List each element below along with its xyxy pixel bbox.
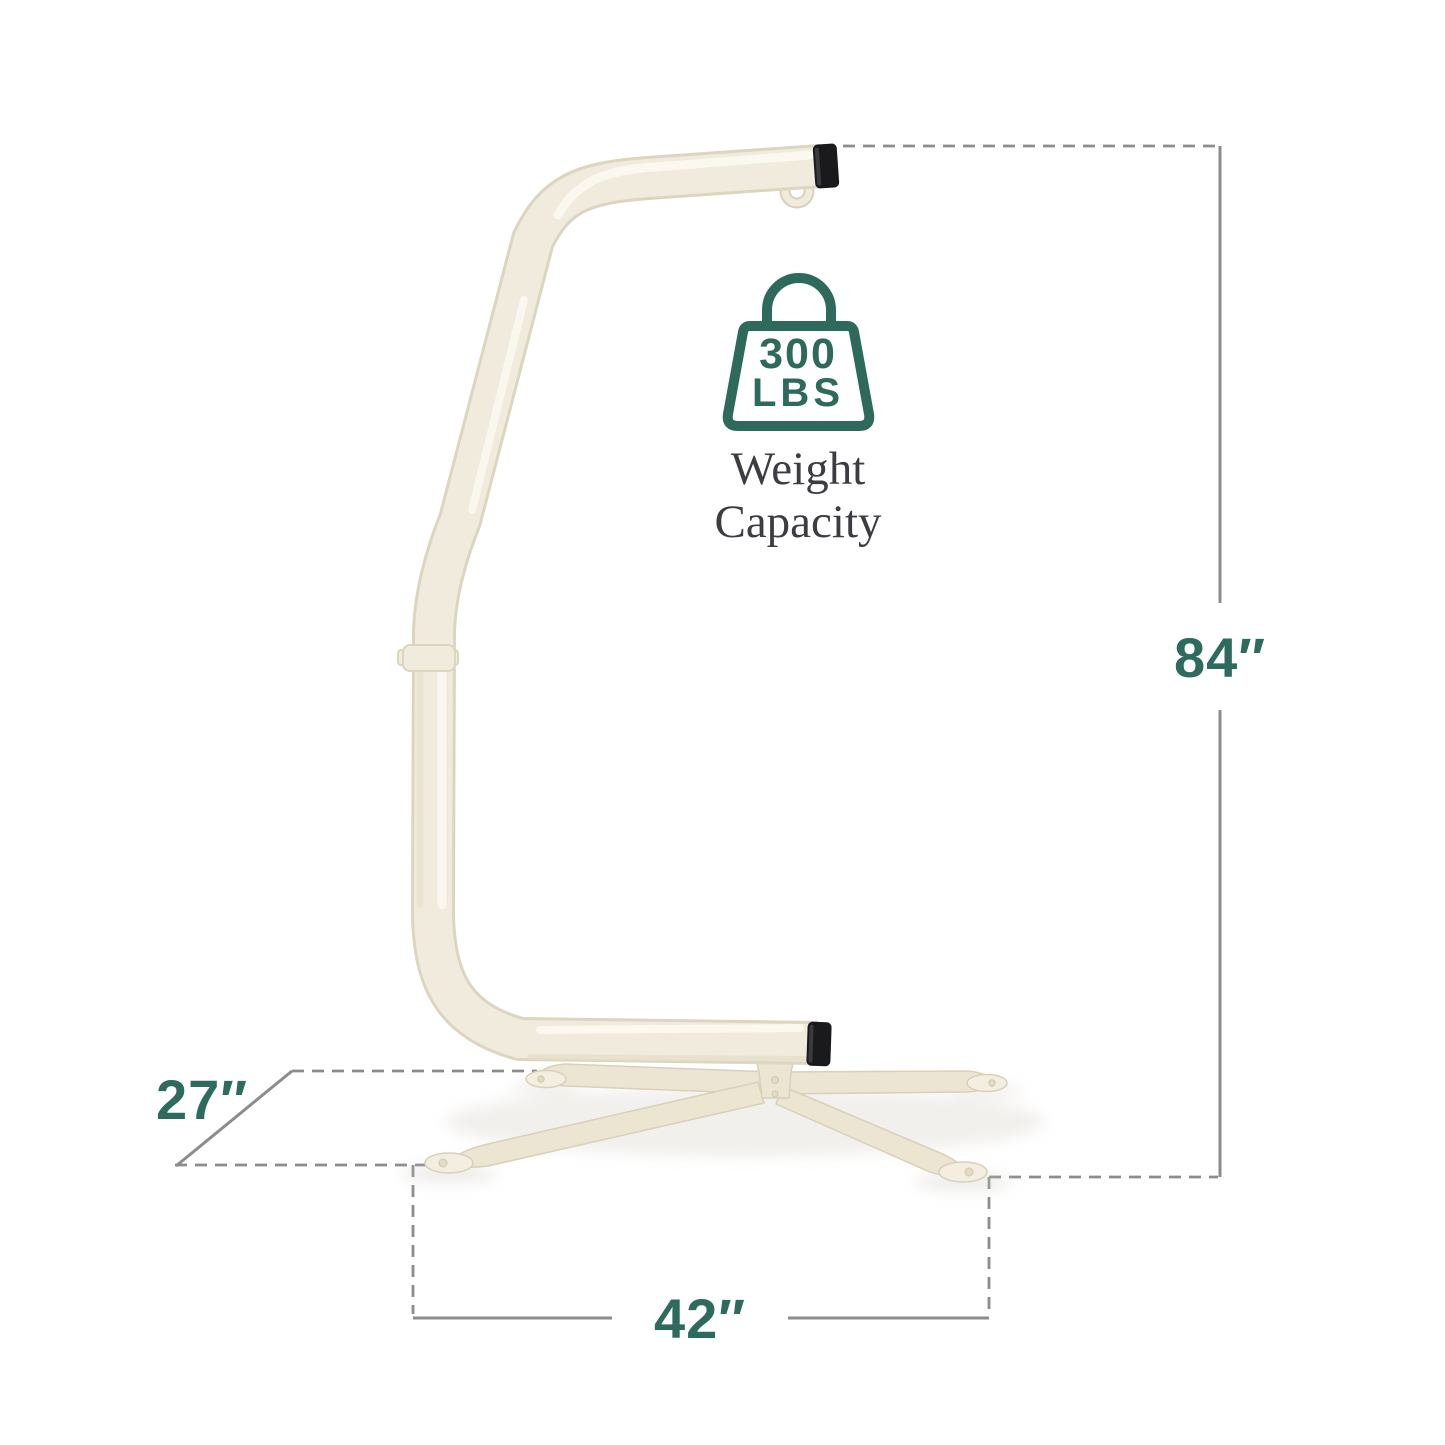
foot-hole-front-right: [965, 1168, 973, 1176]
pole-shade-bottom-arm: [530, 1057, 805, 1059]
base-leg-back-right: [776, 1071, 992, 1094]
width-dimension-label: 42″: [620, 1291, 780, 1347]
product-dimension-diagram: 300 LBS Weight Capacity 84″ 27″ 42″: [0, 0, 1445, 1445]
top-end-cap: [812, 143, 839, 189]
post-bolt-lower: [772, 1091, 778, 1097]
bottom-end-cap: [806, 1022, 832, 1067]
foot-hole-front-left: [439, 1159, 447, 1167]
weight-capacity-unit: LBS: [718, 374, 878, 412]
foot-hole-back-left: [538, 1076, 544, 1082]
foot-pad-back-left: [526, 1071, 566, 1088]
height-dimension-label: 84″: [1140, 630, 1300, 686]
foot-hole-back-right: [989, 1080, 995, 1086]
depth-dimension-label: 27″: [122, 1072, 282, 1128]
weight-capacity-caption-line1: Weight: [688, 443, 908, 495]
stand-pole: [420, 155, 820, 1059]
pole-body: [433, 166, 820, 1043]
foot-pad-front-right: [939, 1162, 987, 1182]
weight-capacity-caption-line2: Capacity: [688, 496, 908, 548]
weight-capacity-value: 300: [718, 335, 878, 374]
foot-pad-back-right: [967, 1075, 1007, 1092]
coupler-ring: [403, 645, 455, 671]
pole-coupler: [398, 645, 458, 671]
foot-pad-front-left: [425, 1153, 473, 1173]
pole-outline: [433, 166, 820, 1043]
stand-and-dimension-artwork: [0, 0, 1445, 1445]
post-bolt-upper: [772, 1077, 779, 1084]
pole-highlight-bottom-arm: [540, 1028, 800, 1030]
